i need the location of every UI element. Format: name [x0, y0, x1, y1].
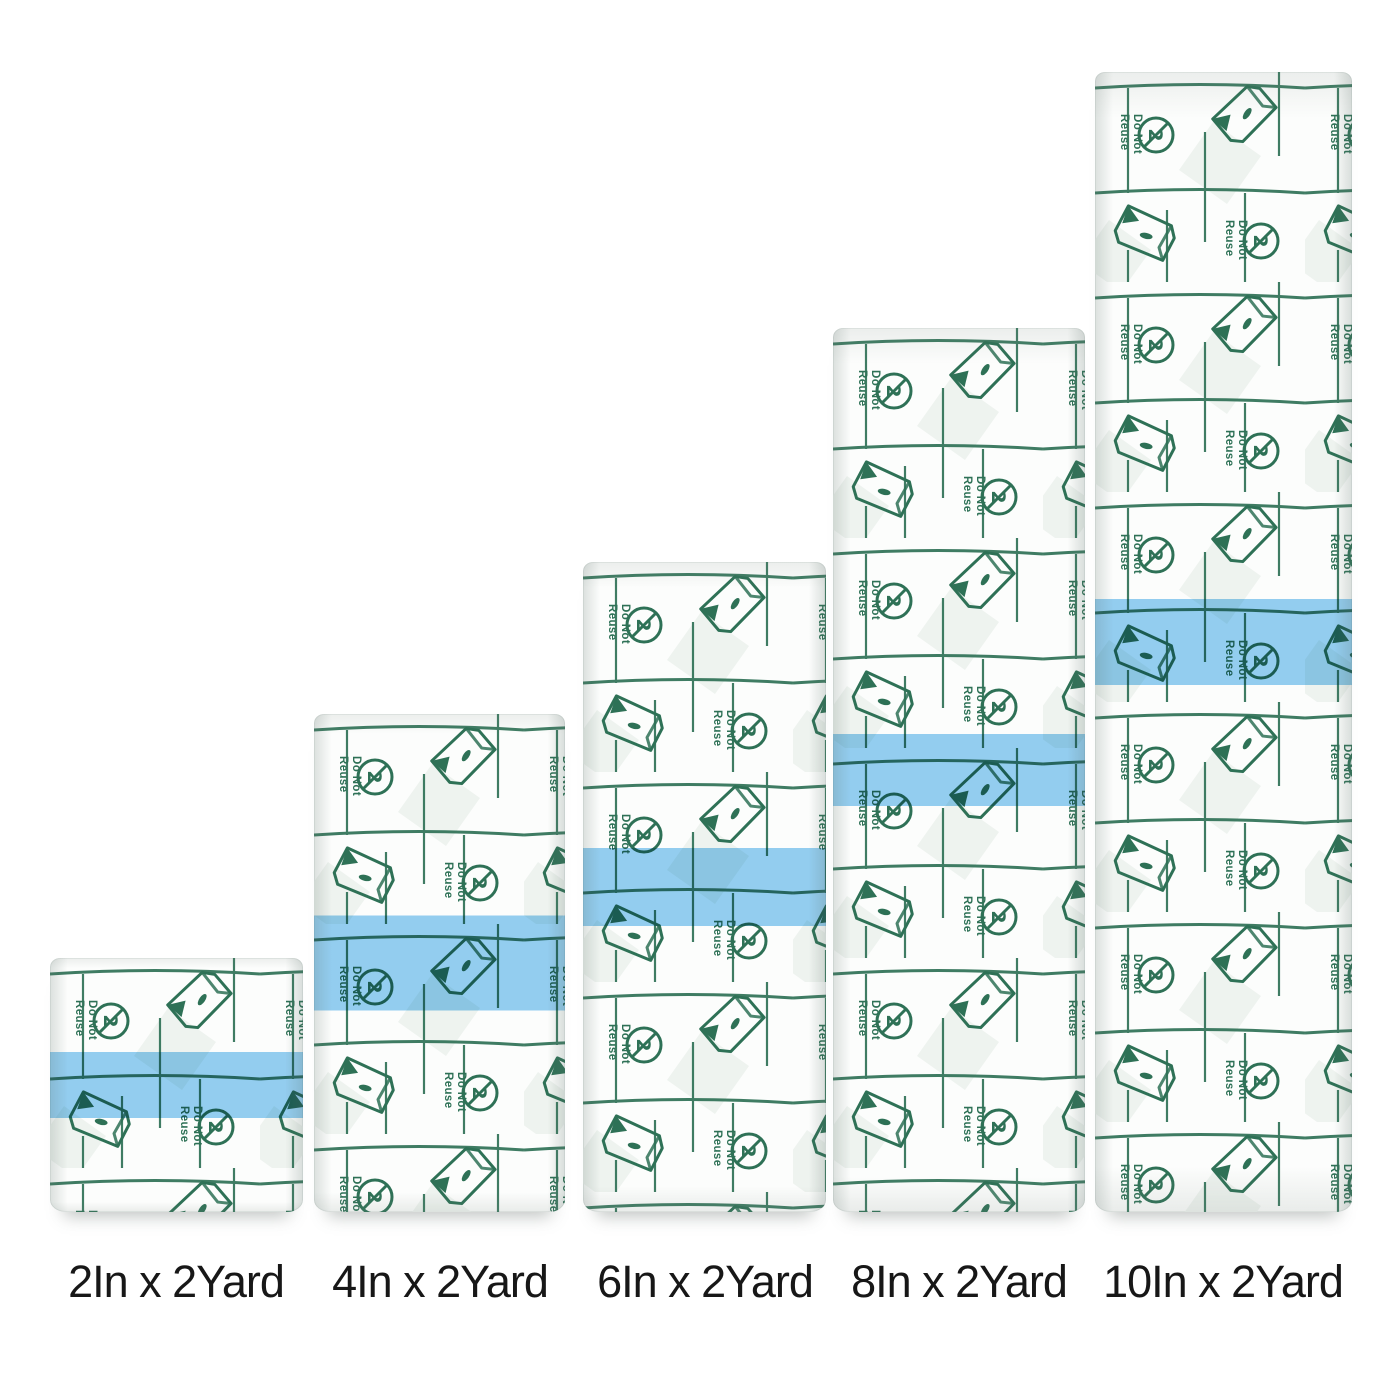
film-roll-10in [1095, 72, 1352, 1212]
product-size-comparison-photo: 2 Do Not Reuse 2 Do Not [0, 0, 1400, 1400]
blue-center-stripe [1095, 599, 1352, 685]
film-roll-4in [314, 714, 565, 1212]
film-roll-6in [583, 562, 826, 1212]
blue-center-stripe [833, 734, 1085, 806]
size-label-10in: 10In x 2Yard [1053, 1256, 1393, 1308]
blue-center-stripe [50, 1052, 303, 1118]
film-roll-8in [833, 328, 1085, 1212]
film-roll-2in [50, 958, 303, 1212]
blue-center-stripe [314, 916, 565, 1011]
blue-center-stripe [583, 848, 826, 926]
